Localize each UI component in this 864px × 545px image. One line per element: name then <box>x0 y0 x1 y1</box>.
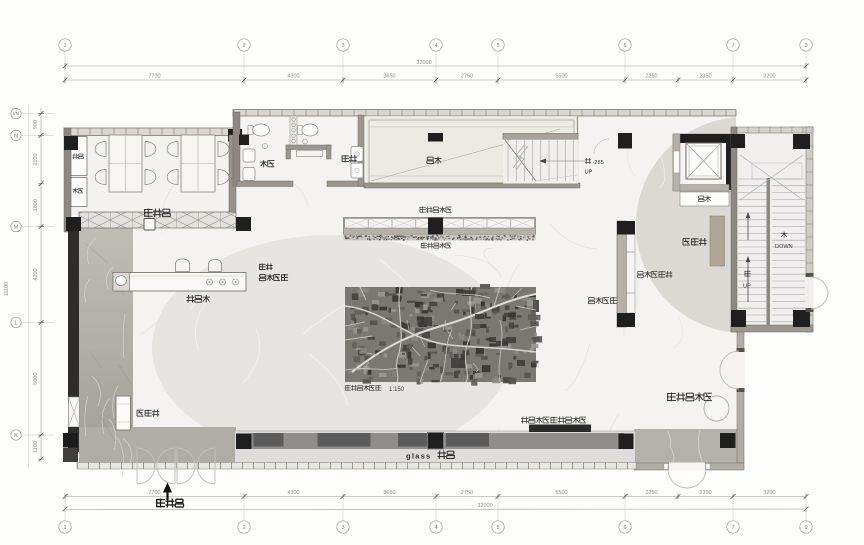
svg-text:11100: 11100 <box>4 282 10 296</box>
svg-text:2350: 2350 <box>699 490 711 496</box>
svg-text:5500: 5500 <box>555 74 567 80</box>
svg-text:9: 9 <box>804 525 807 531</box>
svg-text:2350: 2350 <box>699 74 711 80</box>
svg-text:900: 900 <box>33 120 39 129</box>
svg-text:DOWN: DOWN <box>775 244 793 250</box>
svg-text:3650: 3650 <box>383 490 395 496</box>
svg-text:L: L <box>14 321 17 327</box>
svg-text:9: 9 <box>804 43 807 49</box>
svg-text:3650: 3650 <box>383 74 395 80</box>
svg-text:5: 5 <box>496 525 499 531</box>
svg-text:2: 2 <box>242 43 245 49</box>
svg-text:4: 4 <box>434 525 437 531</box>
svg-text:N: N <box>14 133 18 139</box>
svg-text:2: 2 <box>242 525 245 531</box>
svg-text:6: 6 <box>623 525 626 531</box>
svg-text:7700: 7700 <box>148 490 160 496</box>
svg-text:1:150: 1:150 <box>389 387 405 393</box>
svg-text:2100: 2100 <box>33 153 39 165</box>
svg-text:5000: 5000 <box>33 373 39 385</box>
svg-text:4300: 4300 <box>287 490 299 496</box>
svg-text:M: M <box>14 225 19 231</box>
svg-text:3200: 3200 <box>763 74 775 80</box>
svg-text:7700: 7700 <box>148 74 160 80</box>
svg-text:K: K <box>14 433 18 439</box>
svg-text:2750: 2750 <box>461 490 473 496</box>
svg-text:4: 4 <box>434 43 437 49</box>
svg-text:3: 3 <box>341 525 344 531</box>
svg-text:4200: 4200 <box>33 268 39 280</box>
svg-text:1100: 1100 <box>33 441 39 453</box>
svg-text:UP: UP <box>585 170 593 176</box>
svg-text:5500: 5500 <box>555 490 567 496</box>
svg-text:7: 7 <box>731 43 734 49</box>
svg-text:3: 3 <box>341 43 344 49</box>
svg-text:glass: glass <box>406 452 431 461</box>
svg-text:2250: 2250 <box>645 74 657 80</box>
svg-text:1: 1 <box>63 525 66 531</box>
svg-text:4300: 4300 <box>287 74 299 80</box>
svg-text:6: 6 <box>623 43 626 49</box>
svg-text:2750: 2750 <box>461 74 473 80</box>
svg-text:I/N: I/N <box>13 111 19 116</box>
svg-text:32000: 32000 <box>416 60 431 66</box>
svg-text:32000: 32000 <box>477 503 492 509</box>
svg-text:3200: 3200 <box>763 490 775 496</box>
svg-text:7: 7 <box>731 525 734 531</box>
svg-text:1800: 1800 <box>33 199 39 211</box>
svg-text:1: 1 <box>63 43 66 49</box>
svg-text:2250: 2250 <box>645 490 657 496</box>
svg-text:5: 5 <box>496 43 499 49</box>
svg-text:-285: -285 <box>593 160 604 166</box>
svg-text:UP: UP <box>743 284 751 290</box>
